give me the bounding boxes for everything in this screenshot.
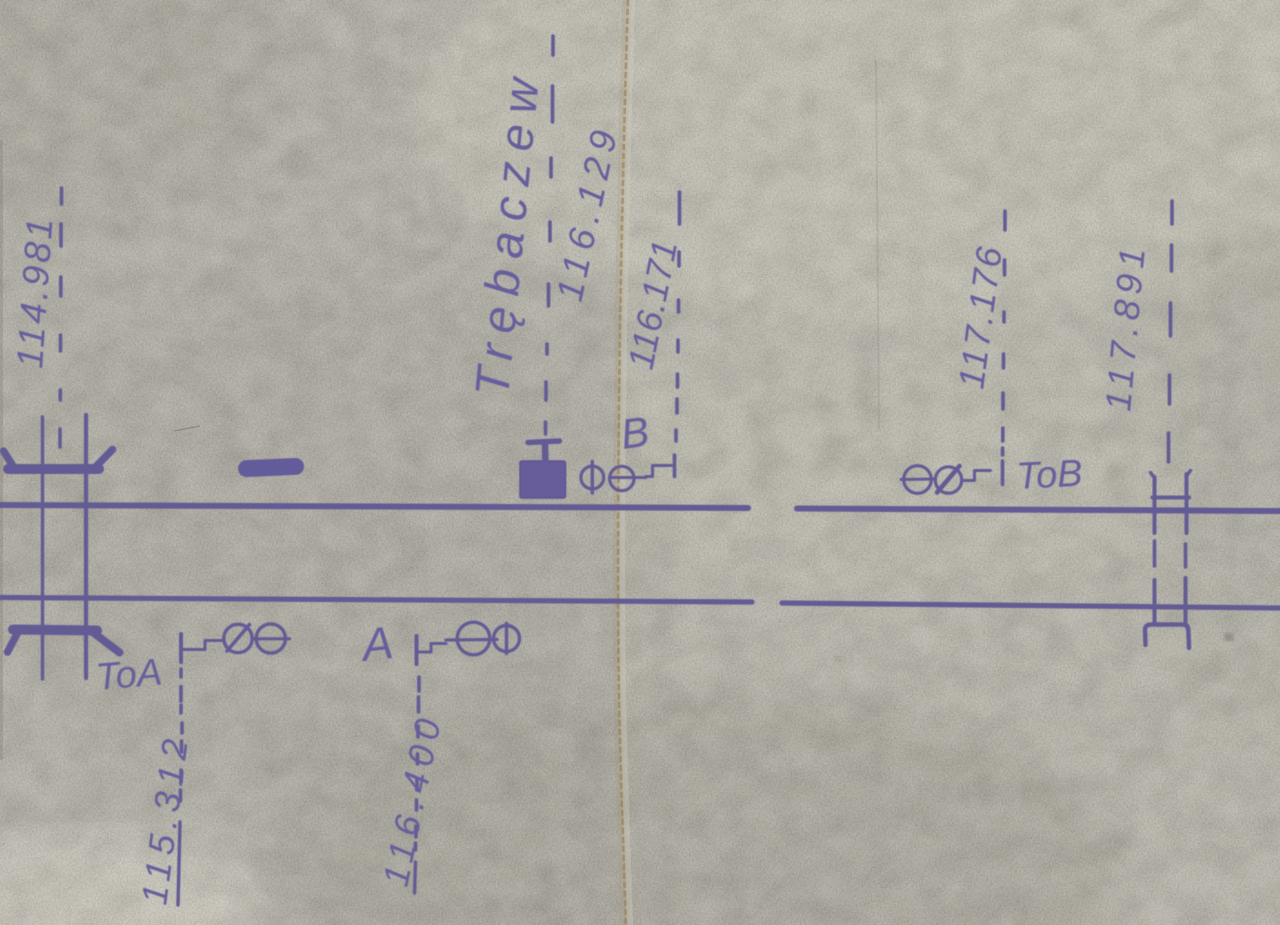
svg-text:ToB: ToB xyxy=(1015,453,1083,498)
svg-text:ToA: ToA xyxy=(94,651,164,699)
